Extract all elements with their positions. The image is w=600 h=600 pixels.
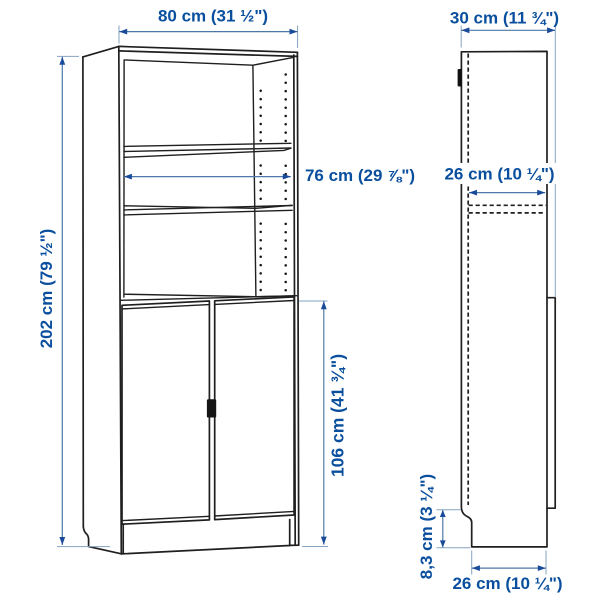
svg-text:8,3 cm (3 ¼"): 8,3 cm (3 ¼") <box>417 474 436 579</box>
svg-text:30 cm (11 ¾"): 30 cm (11 ¾") <box>450 9 559 28</box>
svg-text:26 cm (10 ¼"): 26 cm (10 ¼") <box>444 164 554 183</box>
svg-text:80 cm (31 ½"): 80 cm (31 ½") <box>158 7 268 26</box>
svg-text:26 cm (10 ¼"): 26 cm (10 ¼") <box>452 574 562 593</box>
svg-text:202 cm (79 ½"): 202 cm (79 ½") <box>37 229 56 349</box>
svg-text:76 cm (29 ⅞"): 76 cm (29 ⅞") <box>305 166 415 185</box>
svg-text:106 cm (41 ¾"): 106 cm (41 ¾") <box>328 354 348 477</box>
